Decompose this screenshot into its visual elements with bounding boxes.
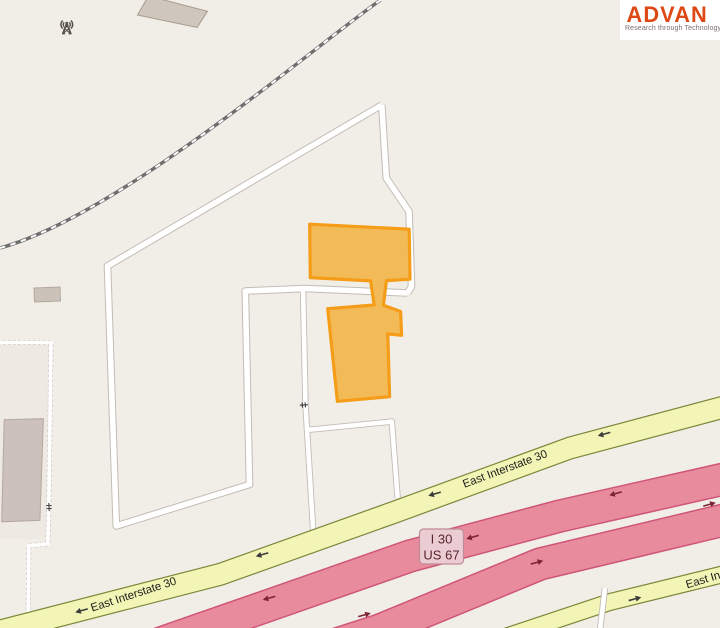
svg-text:US 67: US 67 <box>423 548 459 563</box>
svg-text:I 30: I 30 <box>431 532 453 547</box>
